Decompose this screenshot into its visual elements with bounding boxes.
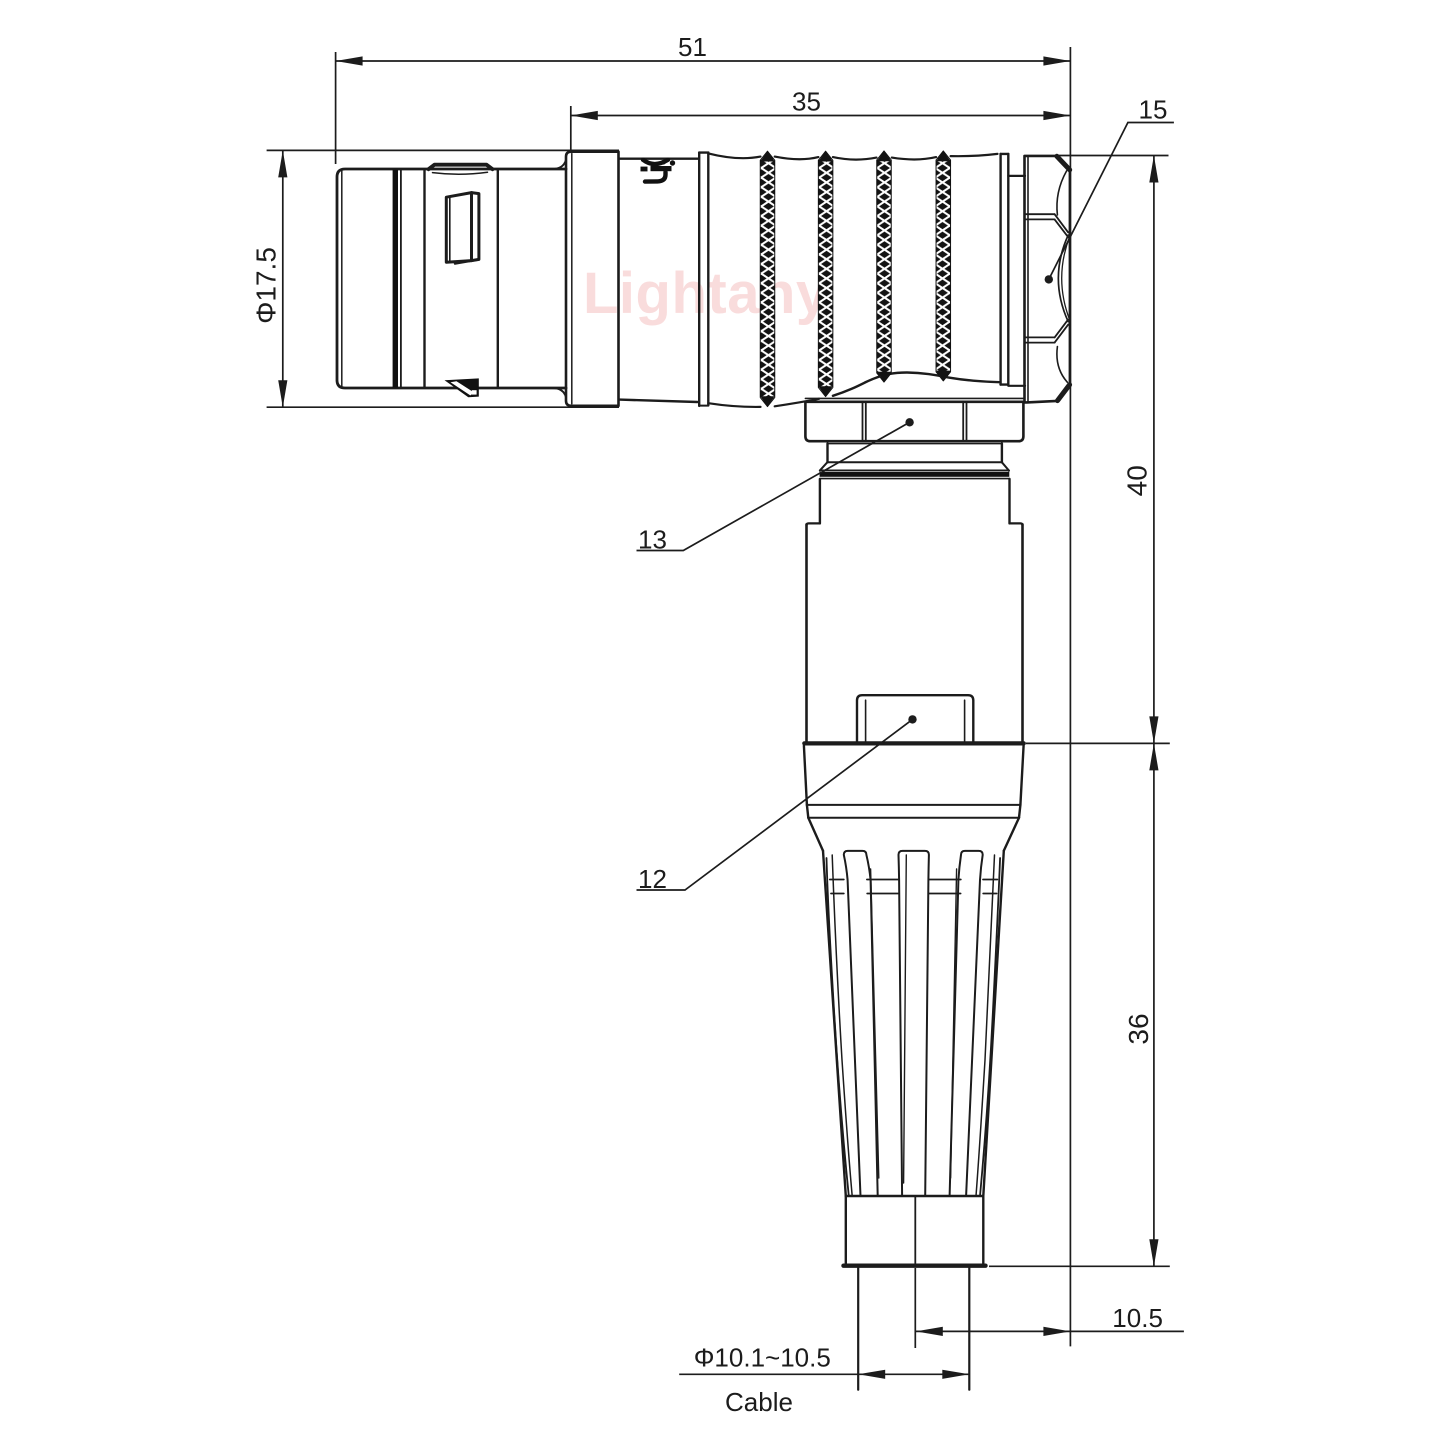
svg-text:Φ10.1~10.5: Φ10.1~10.5 (694, 1342, 831, 1372)
svg-text:10.5: 10.5 (1112, 1303, 1163, 1333)
svg-text:51: 51 (678, 32, 707, 62)
svg-text:13: 13 (638, 525, 667, 555)
svg-text:Φ17.5: Φ17.5 (251, 247, 282, 324)
svg-text:36: 36 (1123, 1013, 1154, 1044)
svg-text:15: 15 (1139, 95, 1168, 125)
svg-text:40: 40 (1122, 465, 1153, 496)
svg-text:Cable: Cable (725, 1387, 793, 1417)
svg-text:35: 35 (792, 86, 821, 116)
svg-text:Lightany: Lightany (583, 261, 829, 326)
svg-text:12: 12 (638, 864, 667, 894)
